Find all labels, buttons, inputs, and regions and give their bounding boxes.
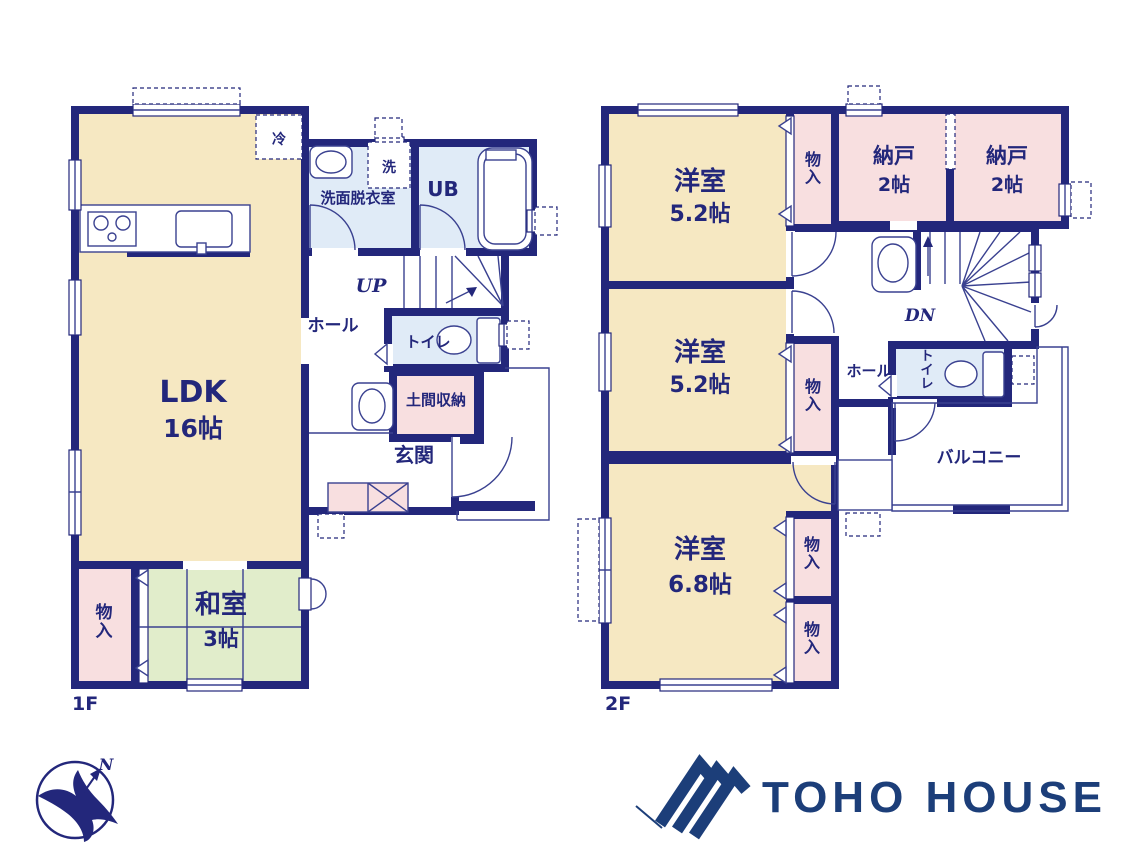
floor-1f: 冷 洗 洗面脱衣室 UB UP ホール トイレ 土間収納 玄関 LDK 16帖 … [69,88,557,715]
label-room3-size: 6.8帖 [668,572,732,598]
label-closet-1f: 物入 [96,602,113,641]
label-nando1-size: 2帖 [878,173,910,196]
door-gap [791,456,836,465]
room-yoshitsu-1 [605,110,790,285]
door-gap [420,248,466,257]
vent-box [1012,356,1034,384]
label-room1-size: 5.2帖 [670,202,731,227]
shutter-box [375,118,402,138]
label-washitsu: 和室 [195,589,247,620]
label-room2-size: 5.2帖 [670,373,731,398]
label-bath: UB [427,177,458,201]
washroom-sink-icon [310,146,352,178]
door-gap-nando [946,114,955,169]
door-arc-balcony [895,403,935,441]
label-nando2: 納戸 [986,144,1028,168]
label-stairs-dn: DN [904,306,937,326]
door-gap [183,561,247,570]
vent-box [535,207,557,235]
compass-north-label: N [98,755,115,774]
door-gap [312,248,358,257]
label-balcony: バルコニー [937,448,1022,468]
label-hall-1f: ホール [308,316,359,336]
label-toilet-1f: トイレ [405,333,450,351]
bathtub-icon [478,148,532,250]
bird-silhouette [38,770,118,842]
label-closet-b1: 物入 [804,535,820,571]
company-logo: TOHO HOUSE [636,764,1107,836]
shutter-box [133,88,240,104]
sliding-door [786,517,794,599]
door-arc-entrance [452,437,512,497]
label-nando2-size: 2帖 [991,173,1023,196]
label-washroom: 洗面脱衣室 [320,189,395,207]
label-closet-b2: 物入 [804,620,820,656]
label-stairs-up: UP [356,275,388,297]
label-ldk-size: 16帖 [163,414,223,443]
door-gap [786,231,795,277]
label-laundry: 洗 [382,159,396,176]
label-nando1: 納戸 [873,144,915,168]
floor-2f: 洋室 5.2帖 納戸 2帖 納戸 2帖 DN 洋室 5.2帖 ホール バルコニー… [578,86,1091,715]
label-washitsu-size: 3帖 [203,627,239,651]
kitchen-counter [80,205,250,254]
compass-icon: N [37,755,118,842]
sink-icon-2f [872,237,916,292]
sliding-door [786,602,794,683]
label-closet-top: 物入 [805,150,821,186]
label-room2: 洋室 [674,337,726,368]
company-name: TOHO HOUSE [762,773,1107,822]
label-floor2: 2F [605,693,631,715]
label-hall-2f: ホール [846,362,891,380]
room-ldk [75,110,305,565]
shutter-box [578,519,599,621]
label-closet-mid: 物入 [805,377,821,413]
label-room3: 洋室 [674,534,726,565]
label-entrance: 玄関 [394,443,434,467]
logo-mark-icon [636,764,746,836]
room-yoshitsu-2 [605,285,790,455]
shoe-cabinet [328,483,408,512]
label-room1: 洋室 [674,166,726,197]
vent-box [318,514,344,538]
label-fridge: 冷 [272,131,286,148]
door-gap [890,221,917,230]
label-floor1: 1F [72,693,98,715]
label-ldk: LDK [159,375,228,410]
vent-box [846,513,880,536]
kitchen-sink-icon [176,211,232,247]
label-doma: 土間収納 [406,391,466,409]
door-gap [786,289,795,334]
wall-porch-stub [455,501,535,511]
shutter-box [848,86,880,104]
balcony-walkway [838,460,892,510]
vent-box [1071,182,1091,218]
wall-balcony-rail [953,505,1010,514]
vent-box [507,321,529,349]
label-toilet-2f: トイレ [920,349,933,392]
room-washitsu [135,565,305,685]
vanity-sink-icon [352,383,393,430]
floorplan-page: 冷 洗 洗面脱衣室 UB UP ホール トイレ 土間収納 玄関 LDK 16帖 … [0,0,1133,849]
